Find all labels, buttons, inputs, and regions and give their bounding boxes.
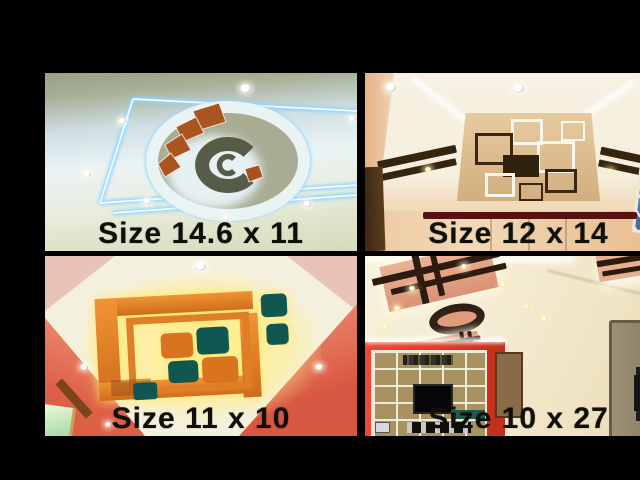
center-square-cluster	[160, 326, 239, 386]
books-row	[403, 355, 453, 365]
teal-accent	[260, 293, 287, 317]
downlight	[80, 364, 88, 370]
tan-ceiling-panel	[457, 113, 600, 201]
wall-light	[607, 169, 613, 174]
downlight	[240, 84, 251, 93]
teal-accent	[133, 382, 158, 400]
cove-light	[365, 338, 505, 343]
deco-square-white	[485, 173, 515, 197]
downlight	[83, 171, 91, 177]
downlight	[385, 83, 396, 92]
downlight	[500, 282, 506, 287]
ceiling-design-collage: Size 14.6 x 11	[0, 0, 640, 480]
ceiling-photo-top-right: Size 12 x 14	[365, 73, 640, 251]
downlight	[303, 201, 311, 207]
downlight	[143, 198, 151, 204]
deco-square-dark	[519, 183, 543, 201]
downlight	[513, 84, 524, 93]
size-caption-top-right: Size 12 x 14	[365, 217, 640, 251]
ceiling-photo-bottom-left: Size 11 x 10	[45, 256, 357, 436]
downlight	[394, 306, 400, 311]
teal-accent	[266, 323, 289, 345]
downlight	[541, 316, 547, 321]
downlight	[382, 324, 388, 329]
deco-square-dark	[545, 169, 577, 193]
downlight	[118, 118, 126, 124]
downlight	[195, 262, 206, 271]
ceiling-photo-bottom-right: Size 10 x 27	[365, 256, 640, 436]
wall-light	[425, 167, 431, 172]
size-caption-bottom-right: Size 10 x 27	[365, 402, 640, 436]
downlight	[523, 304, 529, 309]
downlight	[348, 116, 356, 122]
deco-square-white	[561, 121, 585, 141]
downlight	[315, 364, 323, 370]
size-caption-top-left: Size 14.6 x 11	[45, 217, 357, 251]
ceiling-photo-top-left: Size 14.6 x 11	[45, 73, 357, 251]
downlight	[461, 264, 467, 269]
size-caption-bottom-left: Size 11 x 10	[45, 402, 357, 436]
downlight	[409, 286, 415, 291]
